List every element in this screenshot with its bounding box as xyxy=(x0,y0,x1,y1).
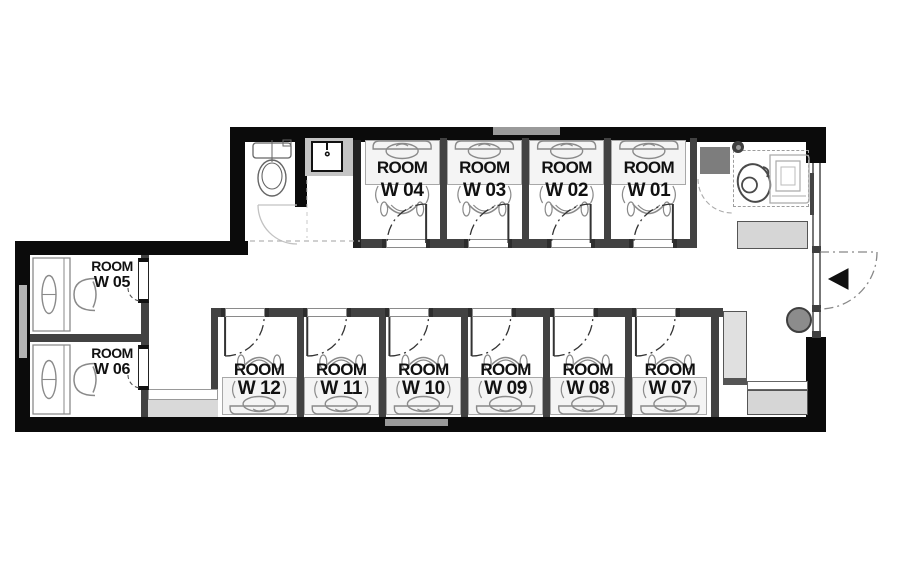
room-w09-number: W 09 xyxy=(469,379,543,399)
room-w01-chair-icon-arm-right xyxy=(663,202,670,216)
wall-right-top-corner xyxy=(806,127,826,163)
spot-marker-center xyxy=(736,145,741,150)
room-w02-door-stop-right xyxy=(591,239,595,248)
accessible-door-swing xyxy=(698,179,732,213)
room-w12-door-stop-right xyxy=(265,308,269,317)
room-w01-threshold xyxy=(633,239,674,248)
floor-plan: ROOMW 04ROOMW 03ROOMW 02ROOMW 01ROOMW 12… xyxy=(0,0,900,571)
room-w10-threshold xyxy=(389,308,429,317)
dark-shelf xyxy=(700,147,730,174)
room-w09-label: ROOM xyxy=(469,361,543,379)
room-w04-number: W 04 xyxy=(365,181,439,201)
room-w06-monitor-icon xyxy=(42,361,56,399)
room-w09-threshold xyxy=(472,308,512,317)
bench-lower xyxy=(747,390,808,415)
wall-right-bottom-corner xyxy=(806,337,826,432)
room-w05-number: W 05 xyxy=(84,275,140,292)
room-w03-door-stop-left xyxy=(464,239,468,248)
room-w07-door-stop-left xyxy=(632,308,636,317)
storefront-mullion-3 xyxy=(812,331,821,338)
toilet-tank xyxy=(253,143,291,158)
room-w11-door-stop-left xyxy=(303,308,307,317)
room-w07-number: W 07 xyxy=(633,379,707,399)
partition-bottom-4 xyxy=(543,308,550,417)
room-w05-label: ROOM xyxy=(84,259,140,274)
room-w03-chair-icon-arm-left xyxy=(463,202,470,216)
room-w06-number: W 06 xyxy=(84,362,140,379)
room-w09-door-stop-left xyxy=(468,308,472,317)
room-w08-label: ROOM xyxy=(551,361,625,379)
partition-bottom-3 xyxy=(461,308,468,417)
leftwing-divider-wall xyxy=(30,334,141,342)
room-w03-chair-icon-arm-right xyxy=(499,202,506,216)
room-w12-threshold xyxy=(225,308,265,317)
room-w02-number: W 02 xyxy=(530,181,604,201)
room-w10-door-stop-right xyxy=(429,308,433,317)
room-w01-chair-icon-arm-left xyxy=(627,202,634,216)
partition-top-2 xyxy=(522,138,529,248)
room-w06-desk-icon xyxy=(33,345,70,414)
room-w01-chair-icon-back xyxy=(633,204,665,214)
room-w01-door-stop-left xyxy=(629,239,633,248)
room-w03-threshold xyxy=(468,239,509,248)
room-w09-door-stop-right xyxy=(512,308,516,317)
room-w03-label: ROOM xyxy=(447,159,521,177)
room-w03-number: W 03 xyxy=(447,181,521,201)
partition-top-1 xyxy=(440,138,447,248)
room-w02-chair-icon-seat xyxy=(556,205,578,211)
room-w04-chair-icon-seat xyxy=(391,205,413,211)
room-w06-label: ROOM xyxy=(84,346,140,361)
room-w01-door-stop-right xyxy=(673,239,677,248)
room-w10-number: W 10 xyxy=(386,379,460,399)
floor-mat xyxy=(148,400,218,417)
room-w07-door-swing xyxy=(636,317,675,356)
room-w01-number: W 01 xyxy=(612,181,686,201)
room-w01-door-swing xyxy=(634,204,673,243)
room-w11-threshold xyxy=(307,308,347,317)
room-w05-monitor-icon xyxy=(42,276,56,314)
room-w10-door-stop-left xyxy=(385,308,389,317)
room-w09-door-swing xyxy=(472,317,511,356)
partition-bottom-2 xyxy=(379,308,386,417)
room-w03-chair-icon-back xyxy=(468,204,500,214)
partition-bottom-5 xyxy=(625,308,632,417)
room-w02-door-stop-left xyxy=(547,239,551,248)
wall-upper-left xyxy=(230,127,245,253)
storefront-mullion-1 xyxy=(812,246,821,253)
room-w02-chair-icon-back xyxy=(551,204,583,214)
room-w07-label: ROOM xyxy=(633,361,707,379)
floor-mat-edge xyxy=(148,389,218,400)
tall-cabinet-base xyxy=(723,378,747,385)
room-w08-threshold xyxy=(554,308,594,317)
bench-upper xyxy=(737,221,808,249)
round-column xyxy=(786,307,812,333)
room-w08-door-stop-right xyxy=(594,308,598,317)
room-w03-chair-icon-seat xyxy=(473,205,495,211)
room-w04-chair-icon-arm-right xyxy=(417,202,424,216)
counter-shelf xyxy=(747,381,808,390)
room-w12-label: ROOM xyxy=(222,361,296,379)
room-w10-label: ROOM xyxy=(386,361,460,379)
partition-top-3 xyxy=(604,138,611,248)
room-w04-chair-icon-arm-left xyxy=(381,202,388,216)
room-w03-door-swing xyxy=(469,204,508,243)
room-w02-threshold xyxy=(551,239,592,248)
room-w04-door-stop-left xyxy=(382,239,386,248)
room-w11-door-swing xyxy=(307,317,346,356)
room-w03-door-stop-right xyxy=(508,239,512,248)
storefront-frame-bar xyxy=(810,173,814,215)
room-w07-threshold xyxy=(636,308,676,317)
room-w11-number: W 11 xyxy=(304,379,378,399)
bottom-wall-vent-strip xyxy=(385,419,448,426)
tall-cabinet xyxy=(723,311,747,381)
entrance-arrow-icon xyxy=(829,269,848,289)
toilet-door-swing xyxy=(258,205,297,244)
room-w11-door-stop-right xyxy=(347,308,351,317)
sink-icon xyxy=(311,141,343,172)
wall-leftwing-top xyxy=(15,241,248,255)
room-w04-threshold xyxy=(386,239,427,248)
room-w11-label: ROOM xyxy=(304,361,378,379)
room-w10-door-swing xyxy=(389,317,428,356)
room-w05-desk-icon xyxy=(33,258,70,331)
room-w02-chair-icon-arm-left xyxy=(545,202,552,216)
room-w04-chair-icon-back xyxy=(386,204,418,214)
room-w08-door-swing xyxy=(554,317,593,356)
room-w08-door-stop-left xyxy=(550,308,554,317)
room-w04-label: ROOM xyxy=(365,159,439,177)
room-w08-number: W 08 xyxy=(551,379,625,399)
toprooms-right-wall xyxy=(690,138,697,248)
window-strip xyxy=(19,285,27,358)
top-wall-vent-strip xyxy=(493,127,560,135)
room-w12-door-stop-left xyxy=(221,308,225,317)
room-w12-number: W 12 xyxy=(222,379,296,399)
entrance-door-swing xyxy=(820,252,877,309)
room-w04-door-stop-right xyxy=(426,239,430,248)
wall-sink-right xyxy=(353,140,361,248)
room-w01-chair-icon-seat xyxy=(638,205,660,211)
room-w02-door-swing xyxy=(552,204,591,243)
bottomrooms-right-wall xyxy=(711,308,719,417)
room-w12-door-swing xyxy=(225,317,264,356)
room-w04-door-swing xyxy=(387,204,426,243)
toilet-seat xyxy=(262,163,282,189)
room-w02-label: ROOM xyxy=(530,159,604,177)
room-w01-label: ROOM xyxy=(612,159,686,177)
room-w02-chair-icon-arm-right xyxy=(581,202,588,216)
room-w07-door-stop-right xyxy=(676,308,680,317)
accessible-area-outline xyxy=(733,150,809,207)
partition-bottom-1 xyxy=(297,308,304,417)
toilet-icon xyxy=(258,160,286,196)
storefront-mullion-2 xyxy=(812,305,821,312)
